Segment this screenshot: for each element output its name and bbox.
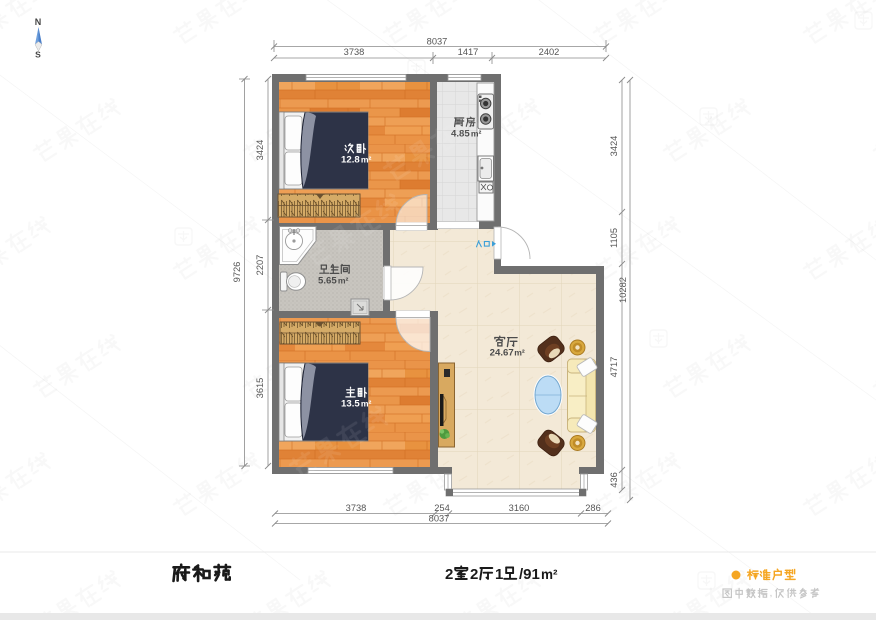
svg-text:5.65: 5.65 [318,276,337,287]
svg-text:m²: m² [338,276,349,286]
svg-text:3738: 3738 [344,47,365,57]
svg-text:1: 1 [495,566,503,583]
svg-text:254: 254 [434,503,450,513]
svg-text:1417: 1417 [458,47,479,57]
svg-text:13.5: 13.5 [341,399,360,410]
svg-text:2: 2 [470,566,478,583]
svg-text:3424: 3424 [255,140,265,161]
svg-text:m²: m² [361,399,372,409]
svg-text:3615: 3615 [255,378,265,399]
svg-text:S: S [35,50,41,60]
svg-text:3424: 3424 [609,136,619,157]
svg-text:,: , [770,587,773,599]
svg-text:4717: 4717 [609,357,619,378]
svg-text:8037: 8037 [427,37,448,47]
svg-text:2: 2 [445,566,453,583]
svg-text:3160: 3160 [509,503,530,513]
svg-text:m²: m² [541,567,558,582]
svg-text:286: 286 [585,503,601,513]
svg-text:10282: 10282 [618,277,628,303]
svg-text:12.8: 12.8 [341,155,360,166]
svg-text:9726: 9726 [232,262,242,283]
svg-text:8037: 8037 [429,514,450,524]
svg-text:436: 436 [609,472,619,488]
svg-text:24.67: 24.67 [490,348,514,359]
svg-text:m²: m² [471,129,482,139]
svg-text:m²: m² [361,155,372,165]
svg-text:/91: /91 [519,566,540,583]
svg-text:3738: 3738 [346,503,367,513]
svg-text:1105: 1105 [609,228,619,248]
svg-text:2402: 2402 [539,47,560,57]
svg-text:m²: m² [514,348,525,358]
svg-text:2207: 2207 [255,255,265,276]
svg-text:N: N [35,17,42,27]
